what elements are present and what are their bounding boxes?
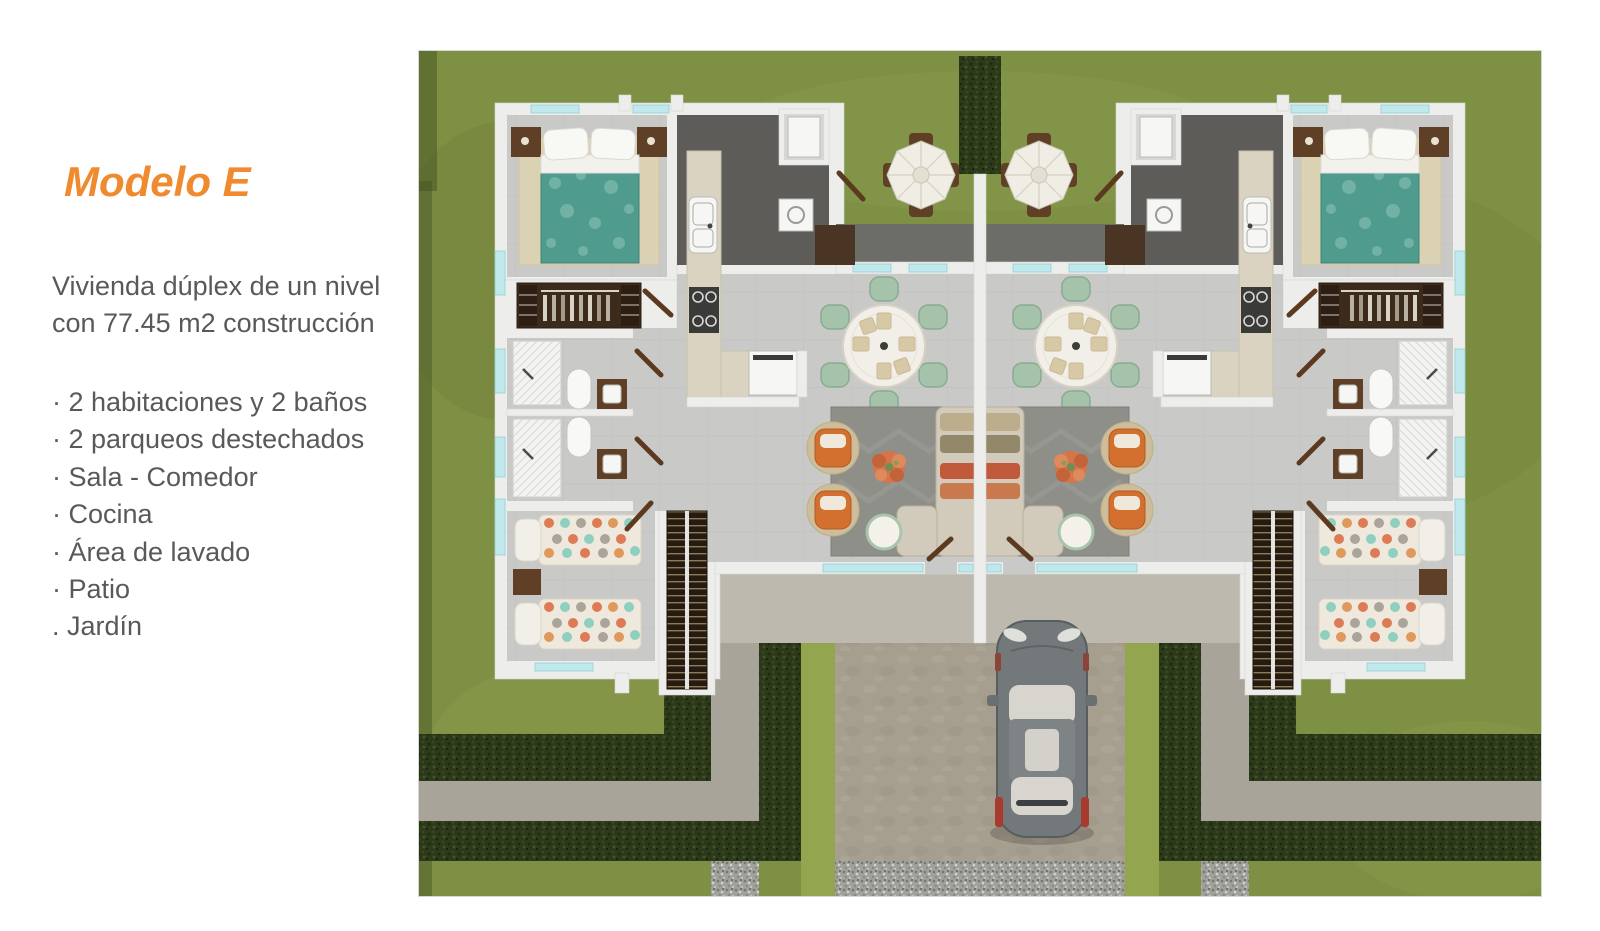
description-line-1: Vivienda dúplex de un nivel [52, 268, 412, 305]
side-mirror [987, 695, 999, 706]
description-line-2: con 77.45 m2 construcción [52, 305, 412, 342]
feature-item: · 2 habitaciones y 2 baños [52, 384, 412, 421]
party-wall [974, 174, 986, 643]
taillight [995, 797, 1003, 827]
parked-car [987, 621, 1097, 845]
feature-item: · Patio [52, 571, 412, 608]
info-panel: Modelo E Vivienda dúplex de un nivel con… [52, 158, 412, 646]
description: Vivienda dúplex de un nivel con 77.45 m2… [52, 268, 412, 342]
sunroof [1025, 729, 1059, 771]
hedge-center-top [959, 56, 1001, 174]
feature-item: . Jardín [52, 608, 412, 645]
feature-item: · 2 parqueos destechados [52, 421, 412, 458]
side-marker [995, 653, 1001, 671]
page-title: Modelo E [64, 158, 412, 206]
model-e-sheet: Modelo E Vivienda dúplex de un nivel con… [0, 0, 1600, 931]
taillight [1081, 797, 1089, 827]
feature-item: · Área de lavado [52, 534, 412, 571]
foliage-corner [419, 51, 437, 191]
side-mirror [1085, 695, 1097, 706]
feature-list: · 2 habitaciones y 2 baños · 2 parqueos … [52, 384, 412, 646]
side-marker [1083, 653, 1089, 671]
feature-item: · Sala - Comedor [52, 459, 412, 496]
rear-window [1011, 777, 1073, 815]
floor-plan-render [419, 51, 1541, 896]
feature-item: · Cocina [52, 496, 412, 533]
floor-plan-image [418, 50, 1542, 897]
